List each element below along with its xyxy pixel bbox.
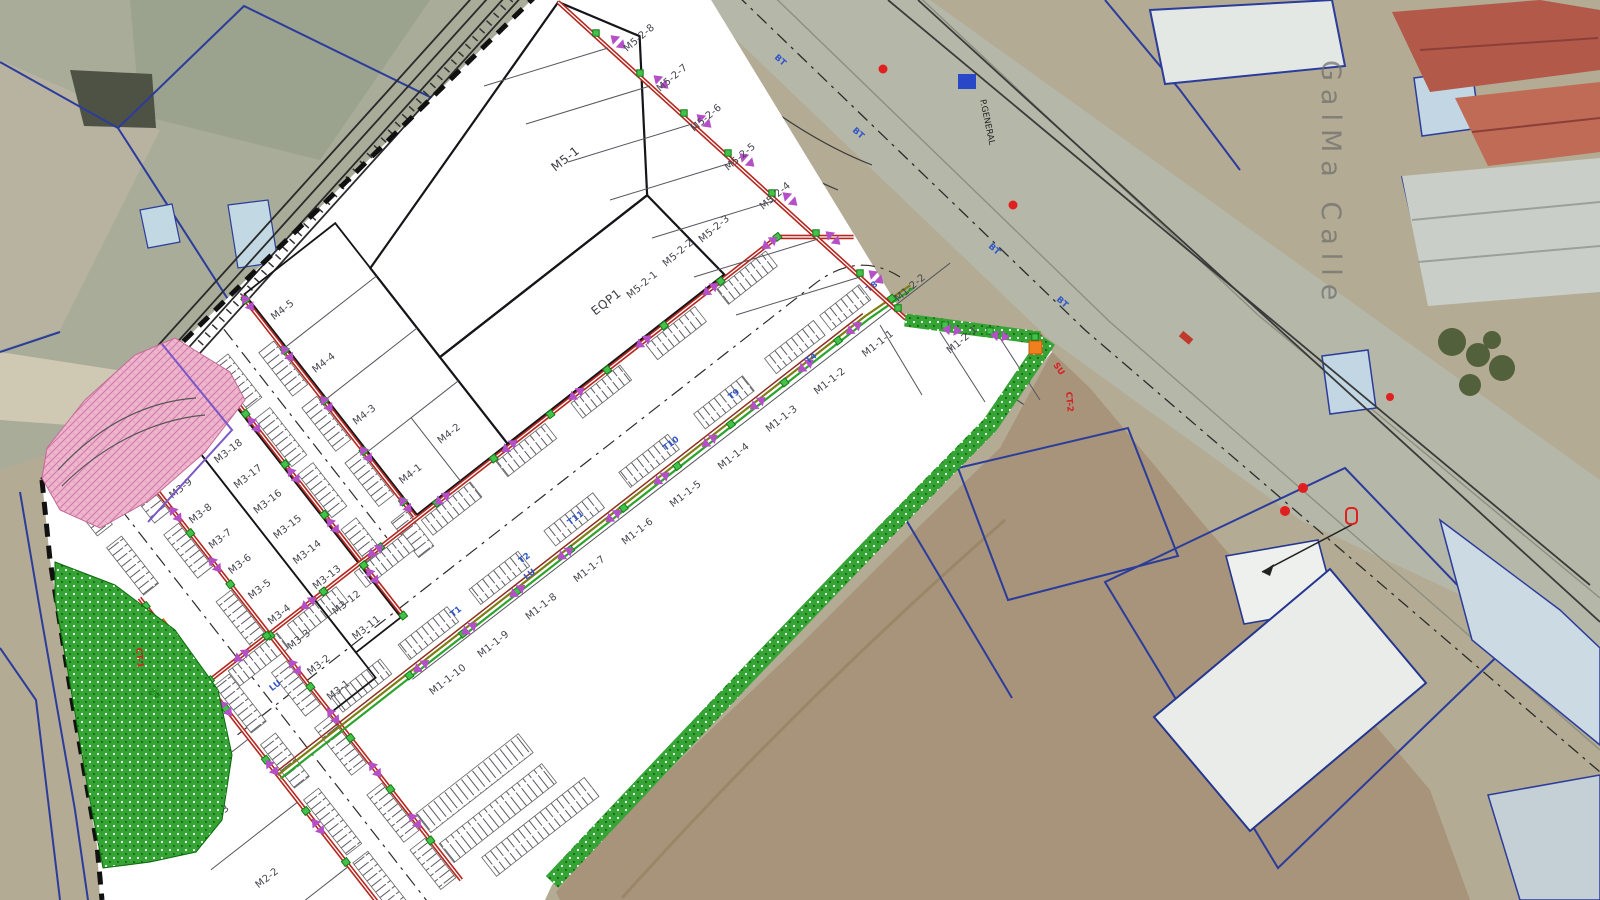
- ct1-label: CT-1: [133, 647, 145, 668]
- transformer-ct2-square: [1029, 341, 1042, 354]
- streetlight-node-icon: [895, 305, 901, 311]
- map-canvas: P.GENERAL GalMa Calle: [0, 0, 1600, 900]
- streetlight-node-icon: [857, 270, 863, 276]
- blue-parcel-1: [140, 204, 180, 248]
- blue-square-marker: [958, 74, 976, 89]
- streetlight-node-icon: [637, 70, 643, 76]
- streetlight-node-icon: [1032, 334, 1038, 340]
- streetlight-node-icon: [813, 230, 819, 236]
- ct2-label: CT-2: [1063, 391, 1075, 412]
- shadow-blob: [70, 70, 156, 128]
- gray-warehouse: [1402, 158, 1600, 306]
- site-plan-map: P.GENERAL GalMa Calle: [0, 0, 1600, 900]
- blue-parcel-4: [1322, 350, 1376, 414]
- streetlight-node-icon: [987, 328, 993, 334]
- streetlight-node-icon: [681, 110, 687, 116]
- streetlight-node-icon: [725, 150, 731, 156]
- streetlight-node-icon: [593, 30, 599, 36]
- watermark-text: GalMa Calle: [1315, 60, 1346, 308]
